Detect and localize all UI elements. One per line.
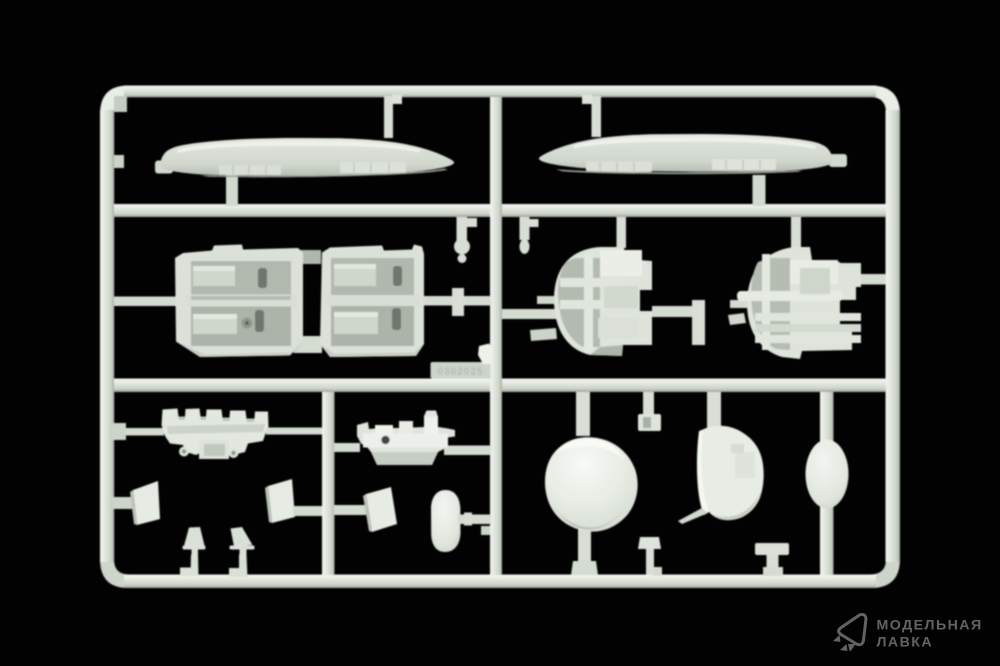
svg-text:0302025: 0302025 — [438, 367, 484, 378]
svg-text:ЛАВКА: ЛАВКА — [877, 635, 934, 651]
svg-text:МОДЕЛЬНАЯ: МОДЕЛЬНАЯ — [877, 618, 983, 634]
